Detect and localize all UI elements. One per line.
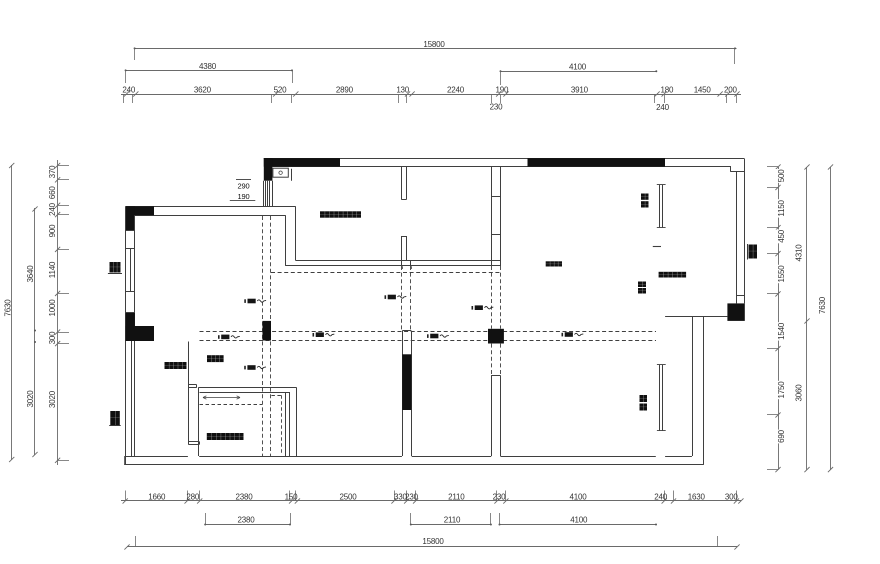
svg-text:240: 240 xyxy=(122,86,135,95)
svg-text:4100: 4100 xyxy=(570,516,588,525)
svg-text:4380: 4380 xyxy=(199,62,217,71)
svg-text:3020: 3020 xyxy=(26,390,35,408)
svg-text:240: 240 xyxy=(656,103,669,112)
svg-text:180: 180 xyxy=(661,86,674,95)
svg-text:190: 190 xyxy=(238,192,250,201)
svg-text:15800: 15800 xyxy=(422,537,444,546)
svg-text:2380: 2380 xyxy=(236,492,254,501)
svg-text:15800: 15800 xyxy=(423,40,445,49)
svg-text:690: 690 xyxy=(777,429,786,442)
svg-text:1540: 1540 xyxy=(777,322,786,340)
svg-text:2500: 2500 xyxy=(340,492,358,501)
svg-text:3060: 3060 xyxy=(795,384,804,402)
svg-text:3620: 3620 xyxy=(194,86,212,95)
svg-text:2890: 2890 xyxy=(336,86,354,95)
svg-text:230: 230 xyxy=(490,102,503,111)
svg-text:1550: 1550 xyxy=(777,265,786,283)
svg-text:3020: 3020 xyxy=(48,390,57,408)
svg-text:130: 130 xyxy=(396,86,409,95)
svg-text:4100: 4100 xyxy=(569,63,587,72)
svg-text:1660: 1660 xyxy=(148,492,166,501)
svg-text:520: 520 xyxy=(274,86,287,95)
svg-text:1750: 1750 xyxy=(777,381,786,399)
svg-text:2110: 2110 xyxy=(448,492,465,501)
svg-text:240: 240 xyxy=(654,492,667,501)
svg-text:900: 900 xyxy=(48,224,57,237)
svg-text:450: 450 xyxy=(777,229,786,242)
svg-text:660: 660 xyxy=(48,186,57,199)
svg-text:3910: 3910 xyxy=(571,86,589,95)
svg-text:230: 230 xyxy=(405,492,418,501)
svg-text:4310: 4310 xyxy=(795,244,804,262)
svg-text:500: 500 xyxy=(777,169,786,182)
svg-text:1150: 1150 xyxy=(777,199,786,216)
svg-text:300: 300 xyxy=(725,492,738,501)
svg-text:280: 280 xyxy=(186,492,199,501)
svg-text:1000: 1000 xyxy=(48,299,57,317)
svg-text:230: 230 xyxy=(493,492,506,501)
svg-text:300: 300 xyxy=(48,331,57,344)
svg-text:1140: 1140 xyxy=(48,261,57,278)
svg-text:2110: 2110 xyxy=(444,516,461,525)
svg-text:7630: 7630 xyxy=(818,296,827,314)
svg-text:2240: 2240 xyxy=(447,86,465,95)
svg-text:200: 200 xyxy=(724,86,737,95)
svg-text:3640: 3640 xyxy=(26,265,35,283)
svg-text:290: 290 xyxy=(238,181,250,190)
svg-text:7630: 7630 xyxy=(3,299,12,317)
svg-text:370: 370 xyxy=(48,165,57,178)
svg-text:190: 190 xyxy=(496,86,509,95)
svg-text:2380: 2380 xyxy=(238,516,256,525)
svg-text:240: 240 xyxy=(48,202,57,215)
svg-text:1630: 1630 xyxy=(688,492,706,501)
svg-text:4100: 4100 xyxy=(570,492,588,501)
svg-text:1450: 1450 xyxy=(694,86,712,95)
svg-text:150: 150 xyxy=(285,492,298,501)
